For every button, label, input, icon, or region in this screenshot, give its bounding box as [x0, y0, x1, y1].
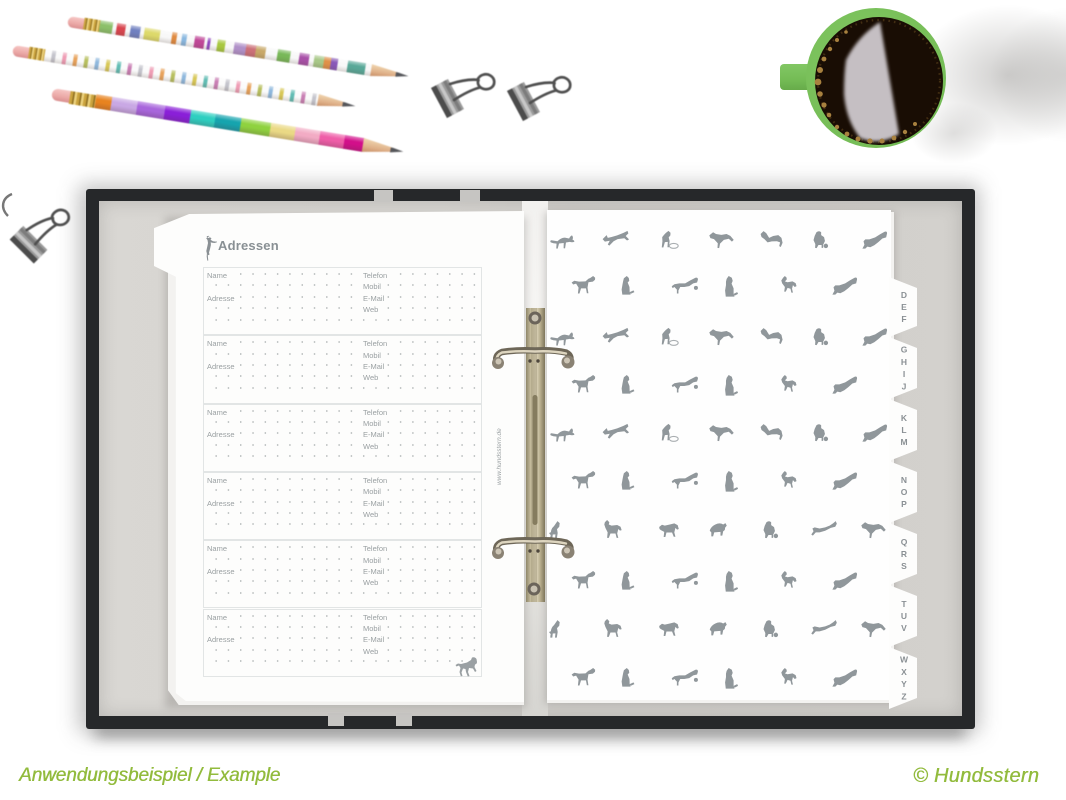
svg-text:N: N — [901, 475, 907, 485]
svg-text:T: T — [901, 599, 907, 609]
svg-text:Q: Q — [901, 537, 908, 547]
svg-text:E: E — [901, 302, 907, 312]
svg-text:J: J — [902, 381, 907, 391]
svg-text:R: R — [901, 549, 907, 559]
svg-text:O: O — [901, 487, 908, 497]
svg-text:S: S — [901, 561, 907, 571]
svg-text:P: P — [901, 499, 907, 509]
svg-text:X: X — [901, 667, 907, 677]
svg-text:Z: Z — [901, 691, 906, 701]
svg-text:U: U — [901, 611, 907, 621]
svg-text:G: G — [901, 345, 908, 355]
svg-text:W: W — [900, 655, 909, 665]
svg-text:H: H — [901, 357, 907, 367]
svg-text:L: L — [901, 425, 906, 435]
svg-text:Y: Y — [901, 679, 907, 689]
svg-text:V: V — [901, 623, 907, 633]
svg-text:F: F — [901, 314, 906, 324]
svg-text:M: M — [900, 437, 907, 447]
svg-text:K: K — [901, 413, 908, 423]
svg-text:D: D — [901, 290, 907, 300]
svg-text:I: I — [903, 369, 905, 379]
